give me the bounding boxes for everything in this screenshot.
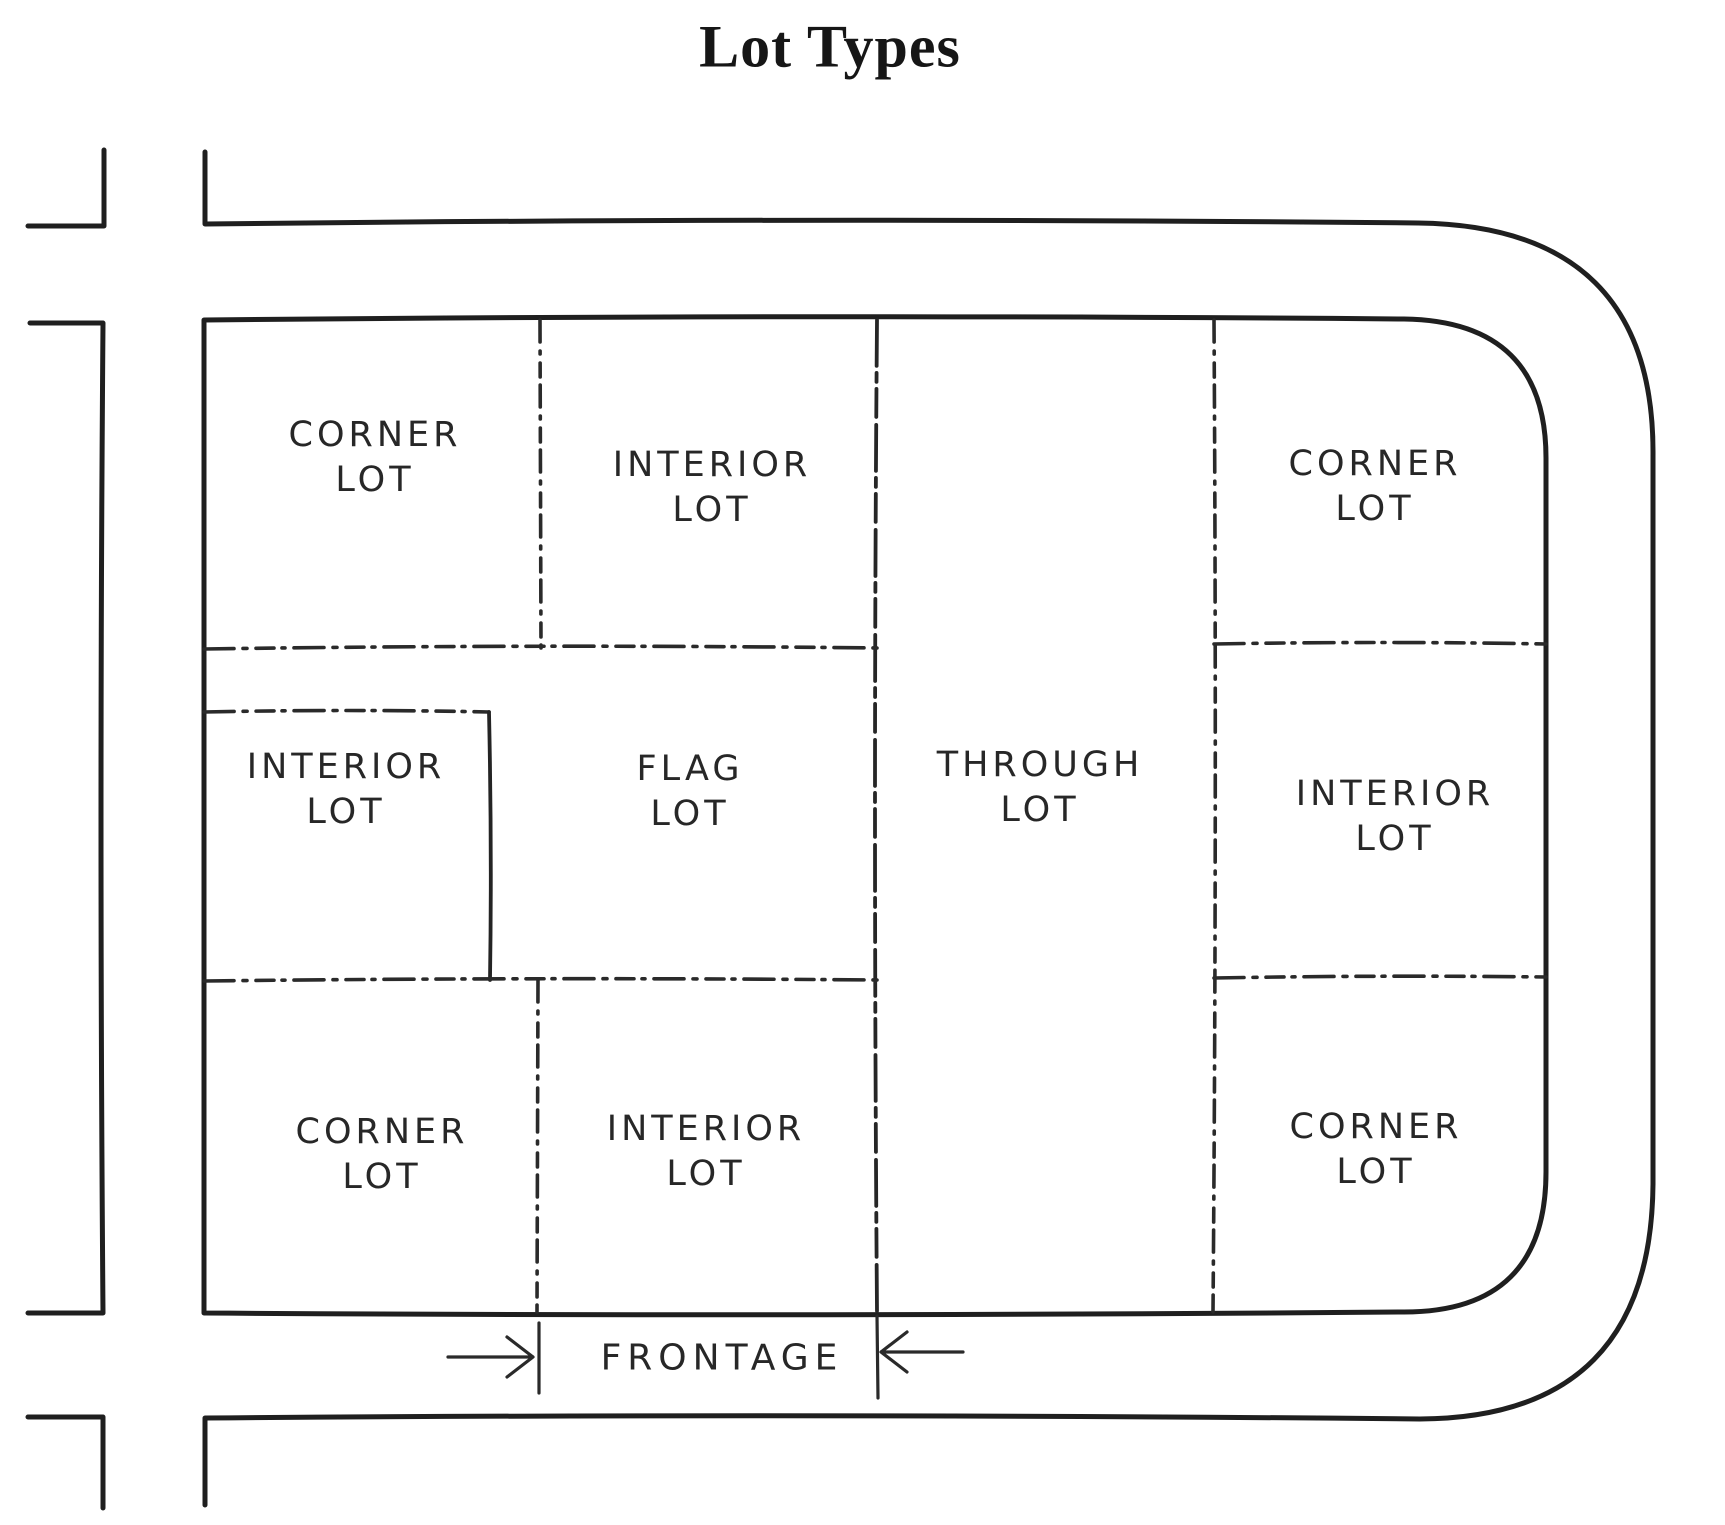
lot-label-line: INTERIOR	[607, 1107, 806, 1152]
lot-label-line: LOT	[1355, 817, 1434, 862]
left-lower-row-boundary-line	[204, 979, 877, 981]
lot-label-line: FLAG	[637, 747, 744, 792]
frontage-tick-right	[877, 1316, 878, 1398]
lot-label-line: INTERIOR	[613, 443, 812, 488]
lot-label-corner-bottom-right: CORNER LOT	[1290, 1105, 1463, 1195]
flag-lot-pole-boundary-line	[204, 711, 489, 713]
lot-label-line: LOT	[650, 792, 729, 837]
lot-label-line: LOT	[1335, 487, 1414, 532]
lot-label-corner-top-right: CORNER LOT	[1289, 442, 1462, 532]
right-upper-row-boundary-line	[1214, 643, 1546, 645]
top-street-west-segment-path	[28, 150, 104, 226]
lot-label-line: LOT	[342, 1155, 421, 1200]
lot-label-line: LOT	[666, 1152, 745, 1197]
lot-label-line: LOT	[1336, 1150, 1415, 1195]
lot-label-line: LOT	[335, 458, 414, 503]
lot-label-line: LOT	[672, 488, 751, 533]
through-lot-west-boundary-line	[875, 320, 877, 1312]
lot-types-diagram: Lot Types CORNER LOT INTERIOR LOT CORNER…	[0, 0, 1725, 1525]
lot-label-line: CORNER	[296, 1110, 469, 1155]
bottom-street-west-segment-path	[28, 1417, 103, 1508]
lot-label-line: CORNER	[1289, 442, 1462, 487]
lot-label-line: INTERIOR	[1296, 772, 1495, 817]
diagram-title: Lot Types	[699, 13, 961, 82]
lot-label-interior-mid-left: INTERIOR LOT	[247, 745, 446, 835]
top-row-lot-divider-line	[540, 320, 541, 648]
right-lower-row-boundary-line	[1214, 976, 1546, 978]
frontage-arrow-left	[448, 1337, 533, 1377]
bottom-row-lot-divider-line	[537, 980, 538, 1312]
frontage-arrow-right	[881, 1332, 963, 1372]
lot-label-through: THROUGH LOT	[937, 743, 1144, 833]
lot-label-corner-bottom-left: CORNER LOT	[296, 1110, 469, 1200]
lot-label-line: INTERIOR	[247, 745, 446, 790]
lot-label-interior-mid-right: INTERIOR LOT	[1296, 772, 1495, 862]
lot-label-line: LOT	[306, 790, 385, 835]
lot-label-corner-top-left: CORNER LOT	[289, 413, 462, 503]
through-lot-east-boundary-line	[1213, 320, 1215, 1312]
left-street-west-curb-path	[28, 323, 103, 1313]
lot-label-line: CORNER	[1290, 1105, 1463, 1150]
lot-label-line: CORNER	[289, 413, 462, 458]
interior-lot-east-boundary-line	[489, 712, 491, 980]
lot-label-interior-top: INTERIOR LOT	[613, 443, 812, 533]
lot-label-interior-bottom: INTERIOR LOT	[607, 1107, 806, 1197]
lot-label-line: THROUGH	[937, 743, 1144, 788]
frontage-dimension-label: FRONTAGE	[601, 1338, 844, 1379]
lot-label-line: LOT	[1000, 788, 1079, 833]
lot-label-flag: FLAG LOT	[637, 747, 744, 837]
